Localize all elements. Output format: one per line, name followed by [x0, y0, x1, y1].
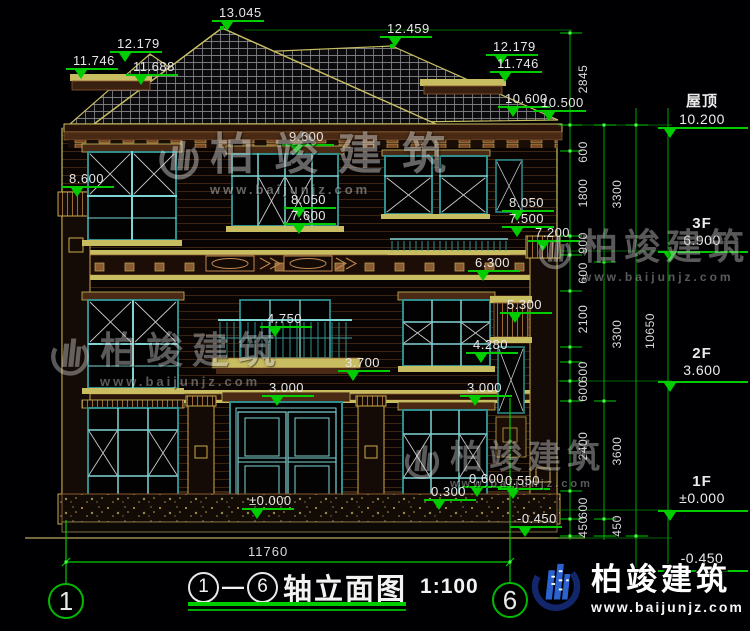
- elevation-marker-triangle: [293, 225, 305, 234]
- elevation-value: 12.179: [486, 40, 539, 54]
- brand-name: 柏竣建筑: [591, 554, 744, 599]
- elevation-marker-line: [66, 68, 118, 70]
- elevation-label: 4.750: [260, 312, 312, 337]
- elevation-value: -0.450: [510, 512, 560, 526]
- elevation-marker-line: [62, 186, 114, 188]
- elevation-marker-line: [466, 352, 518, 354]
- elevation-label: 11.746: [490, 57, 542, 82]
- elevation-value: 9.600: [282, 130, 327, 144]
- axis-bubble-6: 6: [492, 582, 528, 618]
- elevation-marker-triangle: [433, 501, 445, 510]
- title-axis-from-bubble: 1: [188, 572, 219, 603]
- floor-marker: 1F±0.000: [654, 473, 750, 506]
- elevation-marker-triangle: [269, 328, 281, 337]
- elevation-marker-triangle: [75, 70, 87, 79]
- dimension-value: 2400: [576, 432, 590, 461]
- elevation-marker-line: [126, 74, 178, 76]
- elevation-value: 3.700: [338, 356, 383, 370]
- elevation-marker-line: [468, 270, 520, 272]
- floor-marker: 2F3.600: [654, 345, 750, 378]
- floor-marker-line: [658, 251, 748, 253]
- elevation-value: 0.300: [424, 485, 469, 499]
- elevation-label: 0.550: [498, 474, 550, 499]
- elevation-marker-triangle: [507, 108, 519, 117]
- dimension-value: 2100: [576, 305, 590, 334]
- floor-marker-line: [658, 510, 748, 512]
- overall-width-dimension: 11760: [248, 544, 288, 559]
- floor-marker-triangle: [664, 383, 676, 392]
- elevation-value: 12.179: [110, 37, 163, 51]
- elevation-value: 7.500: [502, 212, 547, 226]
- elevation-marker-line: [534, 110, 586, 112]
- elevation-marker-line: [380, 36, 432, 38]
- elevation-label: 7.600: [284, 209, 336, 234]
- dimension-value: 450: [576, 516, 590, 538]
- elevation-label: 6.300: [468, 256, 520, 281]
- floor-elevation: 3.600: [654, 362, 750, 378]
- elevation-value: 3.000: [460, 381, 505, 395]
- title-underline-thick: [188, 602, 406, 606]
- elevation-marker-triangle: [475, 354, 487, 363]
- floor-elevation: 10.200: [654, 111, 750, 127]
- elevation-value: 12.459: [380, 22, 433, 36]
- elevation-marker-line: [460, 395, 512, 397]
- elevation-marker-triangle: [511, 228, 523, 237]
- elevation-marker-line: [500, 312, 552, 314]
- elevation-value: 6.300: [468, 256, 513, 270]
- dimension-value: 3300: [610, 320, 624, 349]
- floor-marker-line: [658, 381, 748, 383]
- elevation-marker-triangle: [543, 112, 555, 121]
- dimension-value: 600: [576, 380, 590, 402]
- building-elevation: [0, 0, 750, 631]
- elevation-marker-line: [490, 71, 542, 73]
- elevation-value: 8.050: [502, 196, 547, 210]
- elevation-label: 8.600: [62, 172, 114, 197]
- elevation-marker-triangle: [509, 314, 521, 323]
- elevation-value: 10.500: [534, 96, 587, 110]
- title-underline-thin: [188, 609, 406, 611]
- elevation-marker-line: [498, 488, 550, 490]
- floor-label: 3F: [654, 215, 750, 232]
- elevation-value: 8.600: [62, 172, 107, 186]
- elevation-marker-triangle: [71, 188, 83, 197]
- elevation-marker-triangle: [519, 528, 531, 537]
- site-logo: 柏竣建筑 www.baijunjz.com: [527, 552, 744, 616]
- elevation-marker-line: [284, 223, 336, 225]
- dimension-value: 600: [576, 141, 590, 163]
- elevation-label: 7.200: [528, 226, 580, 251]
- elevation-value: 11.746: [490, 57, 542, 71]
- elevation-value: 7.600: [284, 209, 329, 223]
- axis-bubble-1: 1: [48, 583, 84, 619]
- floor-marker-triangle: [664, 253, 676, 262]
- dimension-value: 10650: [643, 313, 657, 349]
- elevation-label: 12.459: [380, 22, 433, 47]
- elevation-marker-triangle: [507, 490, 519, 499]
- base-plinth: [25, 494, 585, 538]
- elevation-label: 5.300: [500, 298, 552, 323]
- elevation-marker-triangle: [347, 372, 359, 381]
- elevation-marker-triangle: [469, 397, 481, 406]
- dimension-value: 1800: [576, 179, 590, 208]
- elevation-marker-line: [282, 144, 334, 146]
- elevation-label: 4.280: [466, 338, 518, 363]
- floor-marker-triangle: [664, 512, 676, 521]
- brand-logo-icon: [527, 552, 585, 616]
- dimension-value: 600: [576, 262, 590, 284]
- floor-marker: 3F6.900: [654, 215, 750, 248]
- elevation-marker-line: [528, 240, 580, 242]
- dimension-value: 2845: [576, 65, 590, 94]
- elevation-label: 11.688: [126, 60, 178, 85]
- elevation-marker-line: [510, 526, 562, 528]
- floor-marker-triangle: [664, 129, 676, 138]
- elevation-value: 4.280: [466, 338, 511, 352]
- elevation-value: 0.550: [498, 474, 543, 488]
- elevation-marker-line: [338, 370, 390, 372]
- elevation-label: -0.450: [510, 512, 562, 537]
- floor-marker: 屋顶10.200: [654, 90, 750, 127]
- brand-url: www.baijunjz.com: [591, 599, 744, 615]
- elevation-marker-triangle: [389, 38, 401, 47]
- elevation-value: 11.746: [66, 54, 118, 68]
- elevation-value: 3.000: [262, 381, 307, 395]
- floor-label: 2F: [654, 345, 750, 362]
- cad-elevation-drawing: 13.04512.17911.74611.68812.45912.17911.7…: [0, 0, 750, 631]
- elevation-marker-line: [212, 20, 264, 22]
- elevation-label: 3.000: [262, 381, 314, 406]
- elevation-marker-line: [262, 395, 314, 397]
- floor-label: 屋顶: [654, 90, 750, 111]
- elevation-marker-line: [260, 326, 312, 328]
- floor-elevation: ±0.000: [654, 490, 750, 506]
- elevation-value: 13.045: [212, 6, 265, 20]
- elevation-label: 3.700: [338, 356, 390, 381]
- elevation-label: 11.746: [66, 54, 118, 79]
- elevation-marker-triangle: [251, 510, 263, 519]
- title-scale: 1:100: [420, 575, 479, 599]
- elevation-marker-triangle: [135, 76, 147, 85]
- elevation-value: 11.688: [126, 60, 178, 74]
- elevation-marker-triangle: [477, 272, 489, 281]
- elevation-value: 8.050: [284, 193, 329, 207]
- elevation-value: ±0.000: [242, 494, 295, 508]
- elevation-label: 3.000: [460, 381, 512, 406]
- elevation-marker-triangle: [537, 242, 549, 251]
- elevation-value: 5.300: [500, 298, 545, 312]
- elevation-marker-line: [242, 508, 294, 510]
- title-dash: —: [222, 574, 244, 600]
- elevation-label: 9.600: [282, 130, 334, 155]
- elevation-label: 10.500: [534, 96, 587, 121]
- elevation-value: 7.200: [528, 226, 573, 240]
- elevation-label: ±0.000: [242, 494, 295, 519]
- dimension-value: 3300: [610, 180, 624, 209]
- floor-elevation: 6.900: [654, 232, 750, 248]
- elevation-marker-triangle: [499, 73, 511, 82]
- elevation-label: 13.045: [212, 6, 265, 31]
- floor-label: 1F: [654, 473, 750, 490]
- elevation-marker-line: [424, 499, 476, 501]
- elevation-marker-triangle: [291, 146, 303, 155]
- elevation-label: 0.300: [424, 485, 476, 510]
- dimension-value: 450: [610, 515, 624, 537]
- elevation-marker-line: [110, 51, 162, 53]
- floor-marker-line: [658, 127, 748, 129]
- elevation-value: 4.750: [260, 312, 305, 326]
- elevation-marker-triangle: [271, 397, 283, 406]
- title-axis-to-bubble: 6: [247, 572, 278, 603]
- dimension-value: 900: [576, 232, 590, 254]
- elevation-marker-triangle: [221, 22, 233, 31]
- dimension-value: 3600: [610, 437, 624, 466]
